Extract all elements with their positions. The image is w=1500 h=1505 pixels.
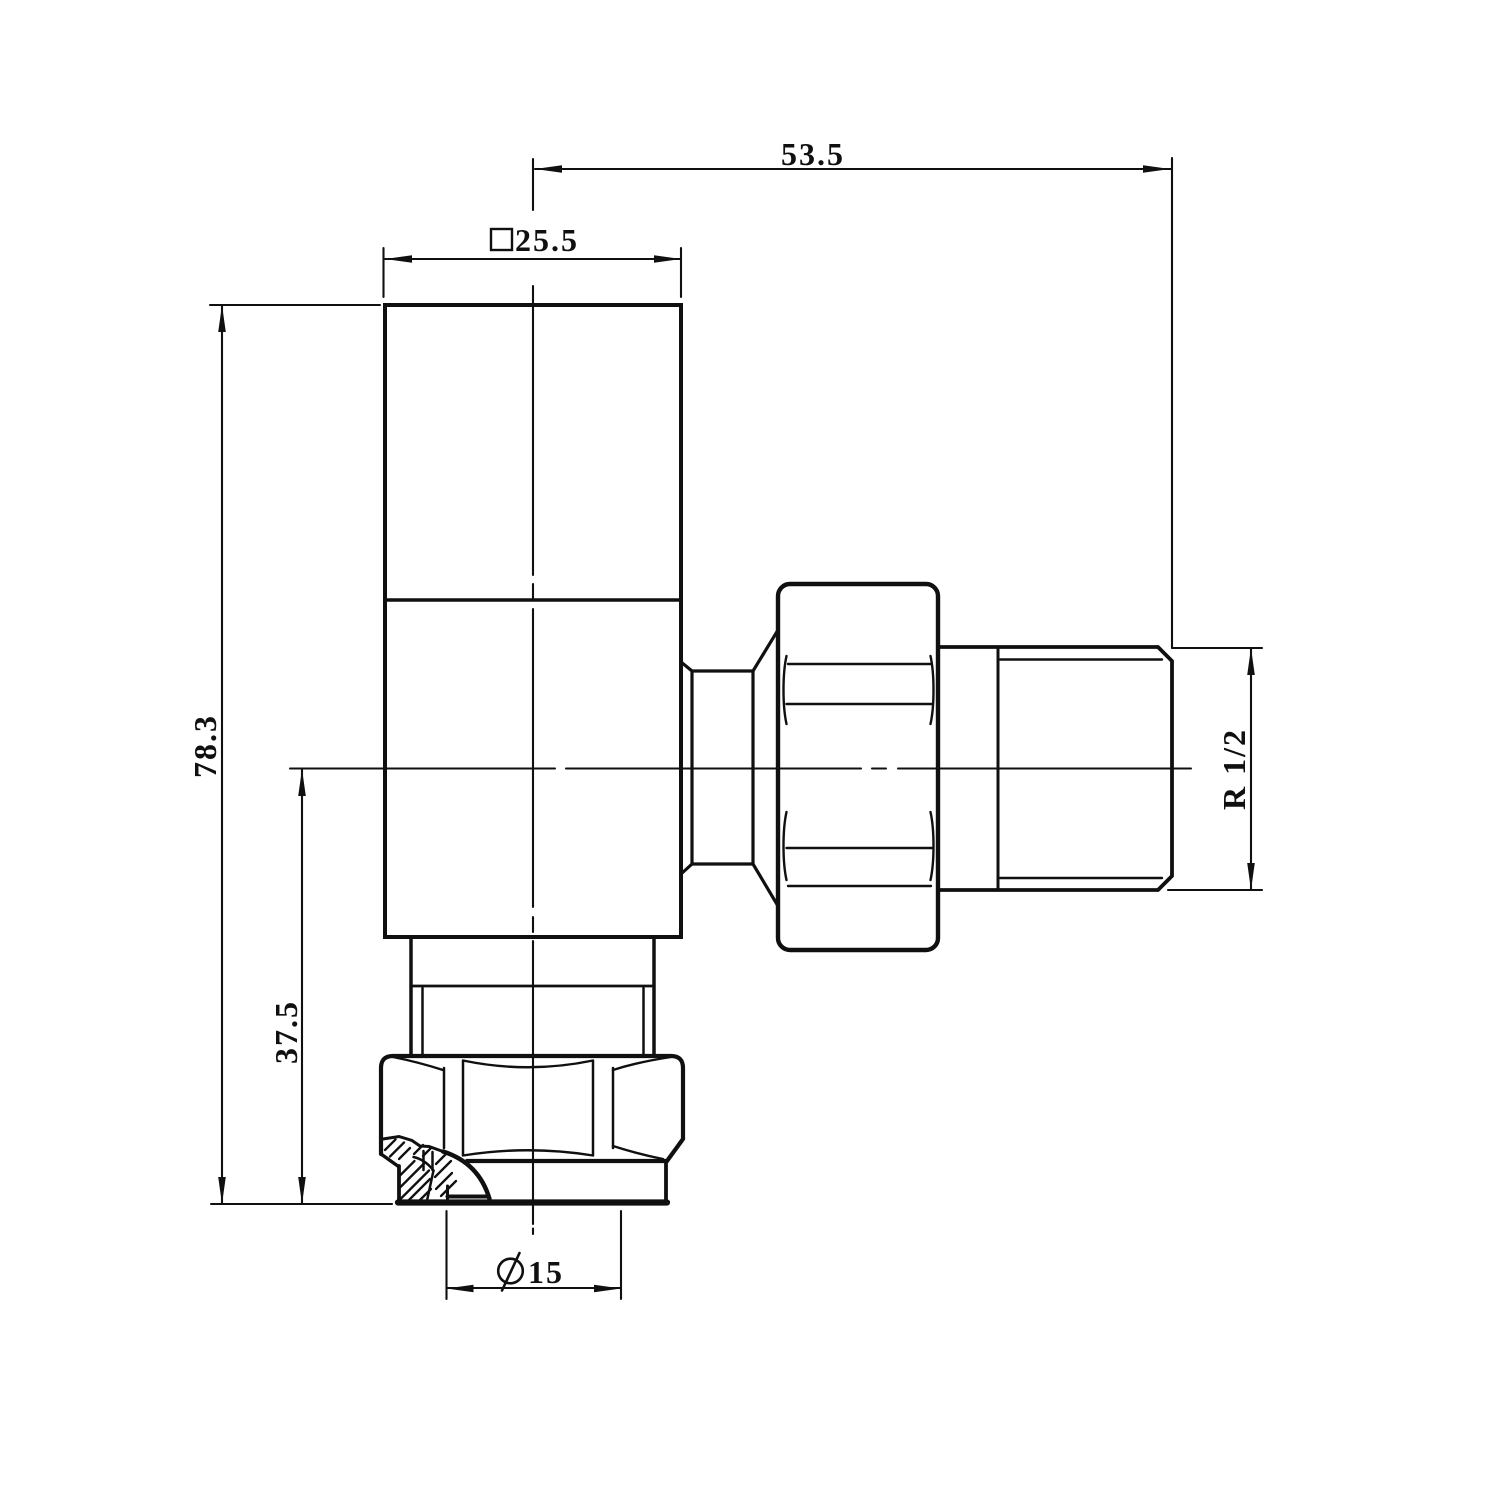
svg-text:37.5: 37.5 (268, 1000, 304, 1064)
svg-text:R 1/2: R 1/2 (1216, 728, 1252, 810)
svg-text:15: 15 (528, 1254, 564, 1290)
svg-text:78.3: 78.3 (187, 714, 223, 778)
svg-text:53.5: 53.5 (781, 136, 845, 172)
svg-text:25.5: 25.5 (515, 222, 579, 258)
